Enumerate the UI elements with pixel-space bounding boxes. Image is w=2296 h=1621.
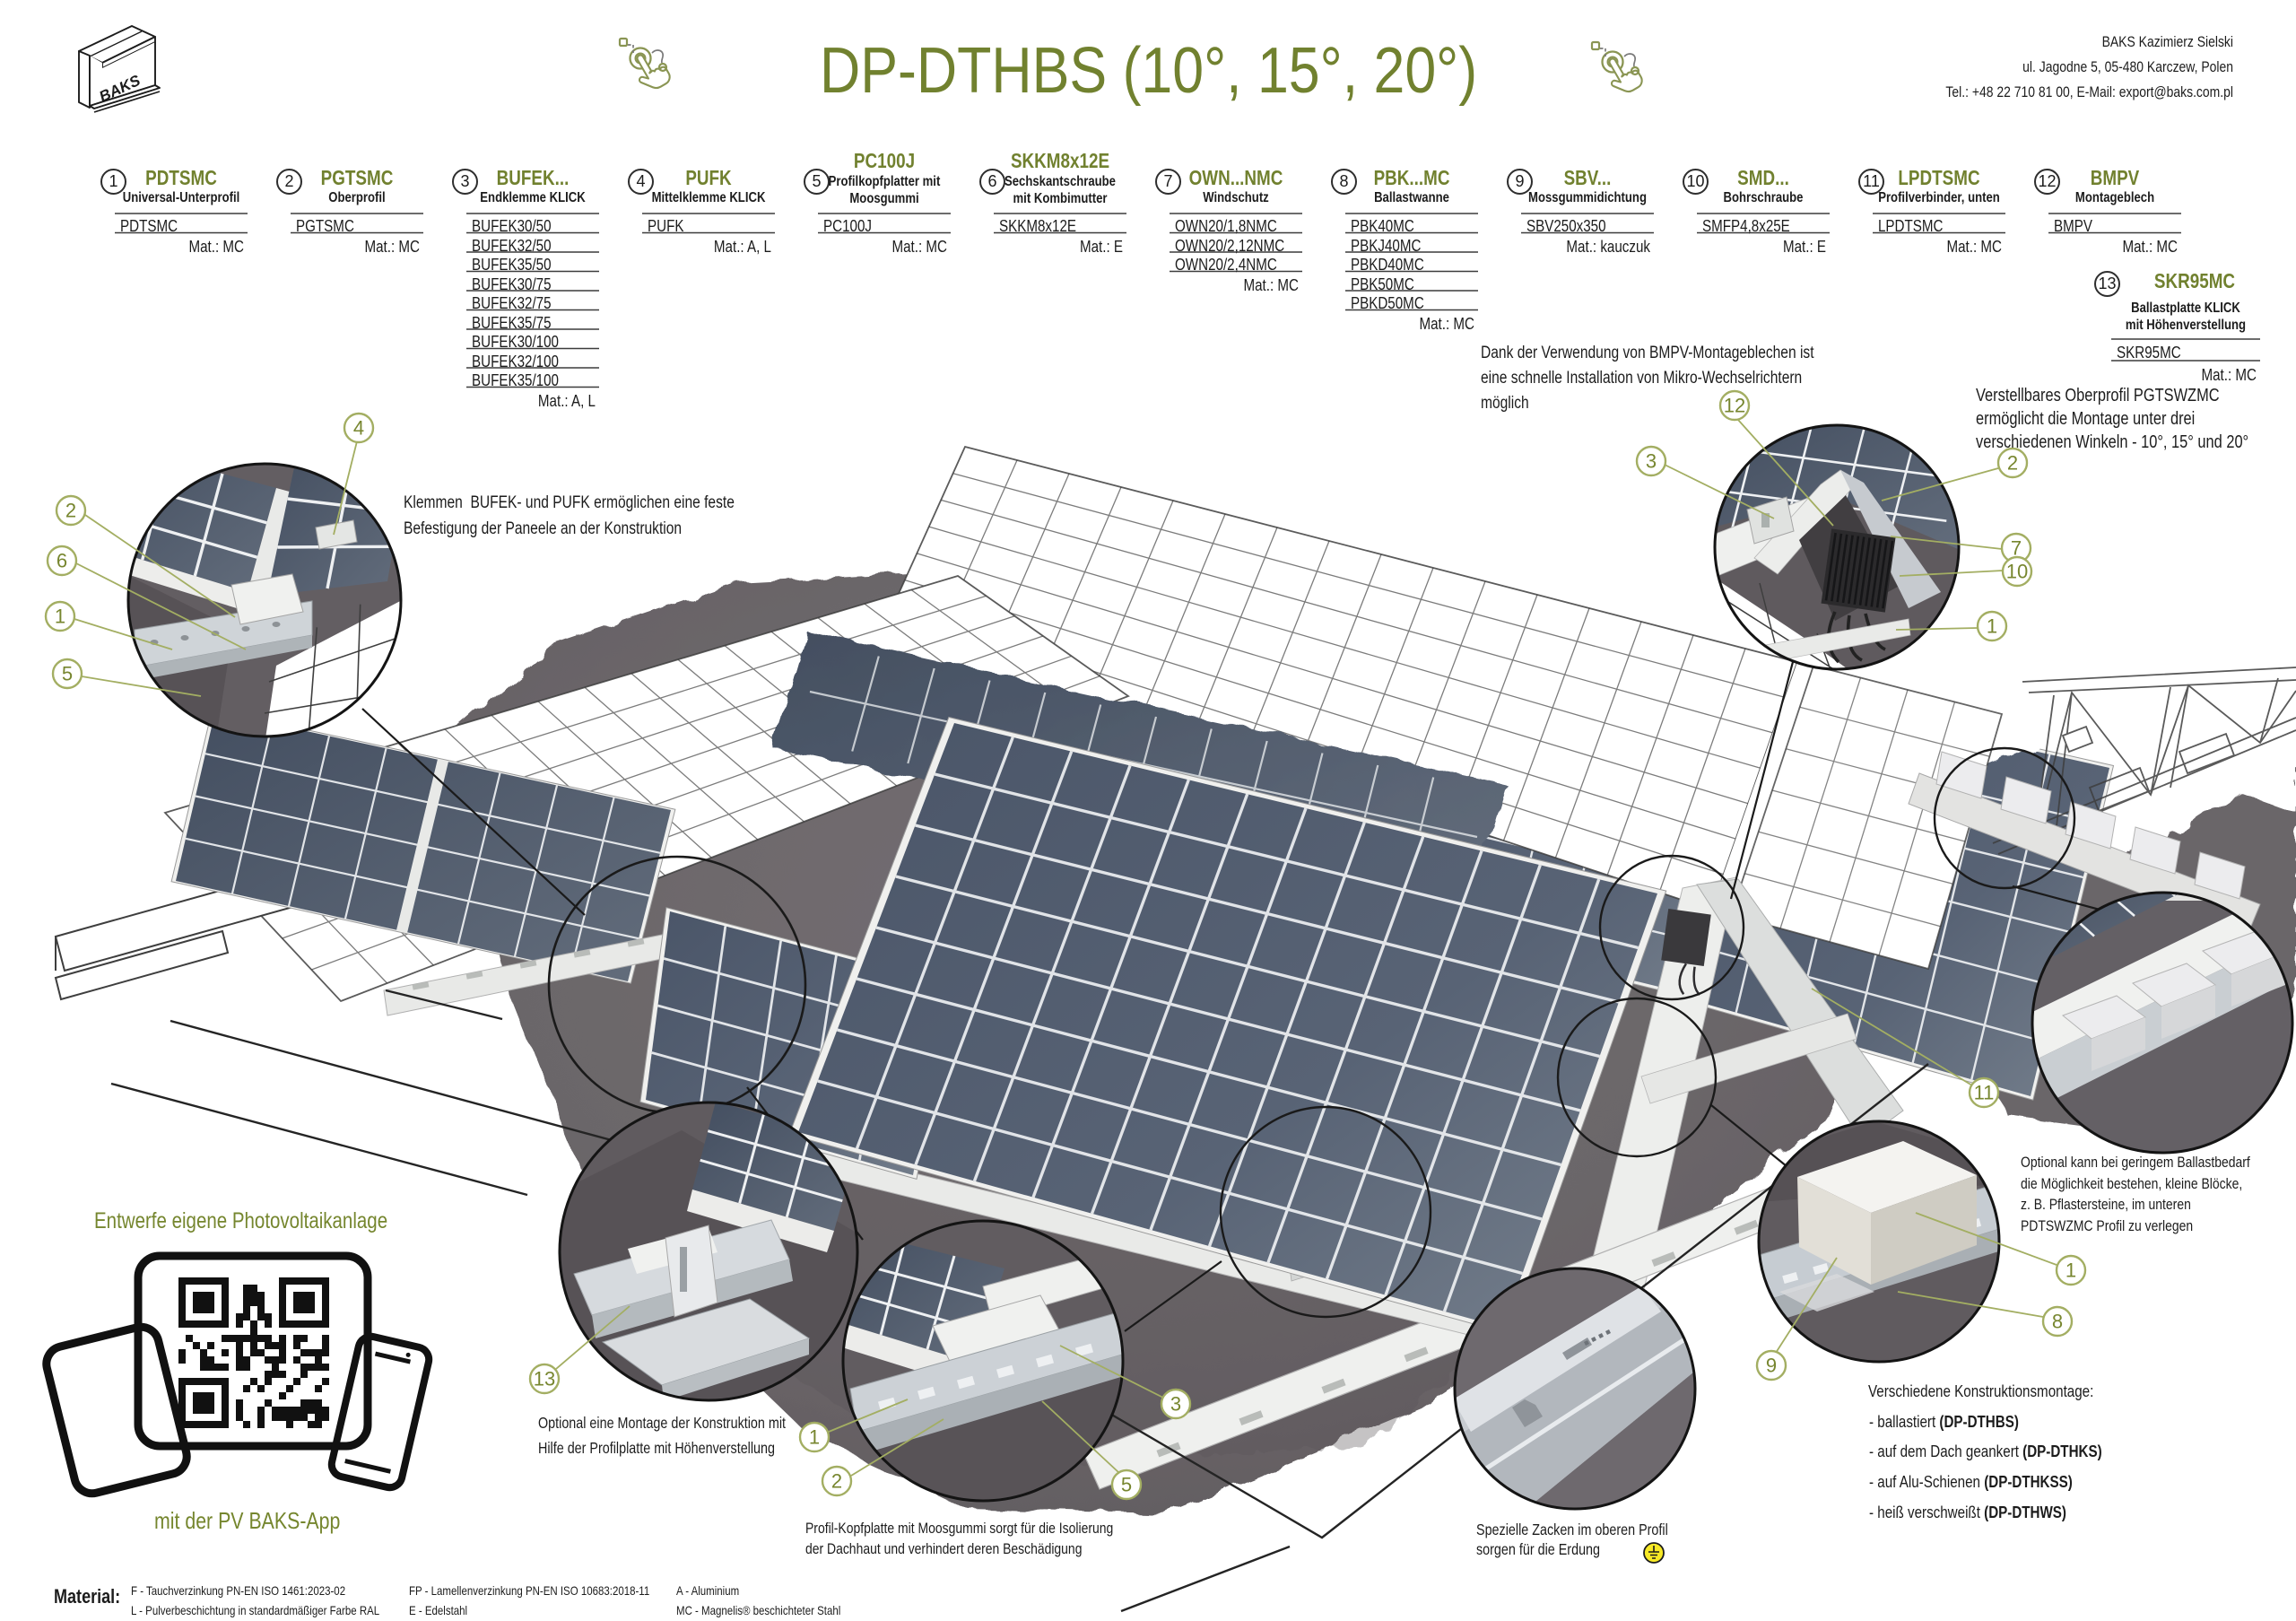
svg-text:2: 2 (831, 1470, 842, 1493)
svg-text:4: 4 (353, 417, 364, 440)
svg-text:3: 3 (1646, 450, 1657, 473)
svg-text:1: 1 (809, 1426, 820, 1449)
svg-text:13: 13 (534, 1368, 555, 1390)
svg-text:8: 8 (2052, 1311, 2063, 1333)
svg-text:5: 5 (1121, 1474, 1132, 1496)
svg-text:3: 3 (1170, 1393, 1181, 1416)
svg-text:10: 10 (2006, 561, 2028, 583)
svg-text:11: 11 (1974, 1082, 1995, 1104)
svg-text:2: 2 (65, 500, 76, 522)
svg-text:1: 1 (1987, 615, 1997, 638)
svg-text:1: 1 (2066, 1259, 2076, 1282)
svg-text:2: 2 (2007, 452, 2018, 475)
svg-text:6: 6 (57, 550, 67, 572)
svg-text:1: 1 (55, 606, 65, 628)
svg-text:9: 9 (1766, 1355, 1777, 1377)
svg-text:5: 5 (62, 663, 73, 685)
svg-text:7: 7 (2011, 537, 2022, 560)
